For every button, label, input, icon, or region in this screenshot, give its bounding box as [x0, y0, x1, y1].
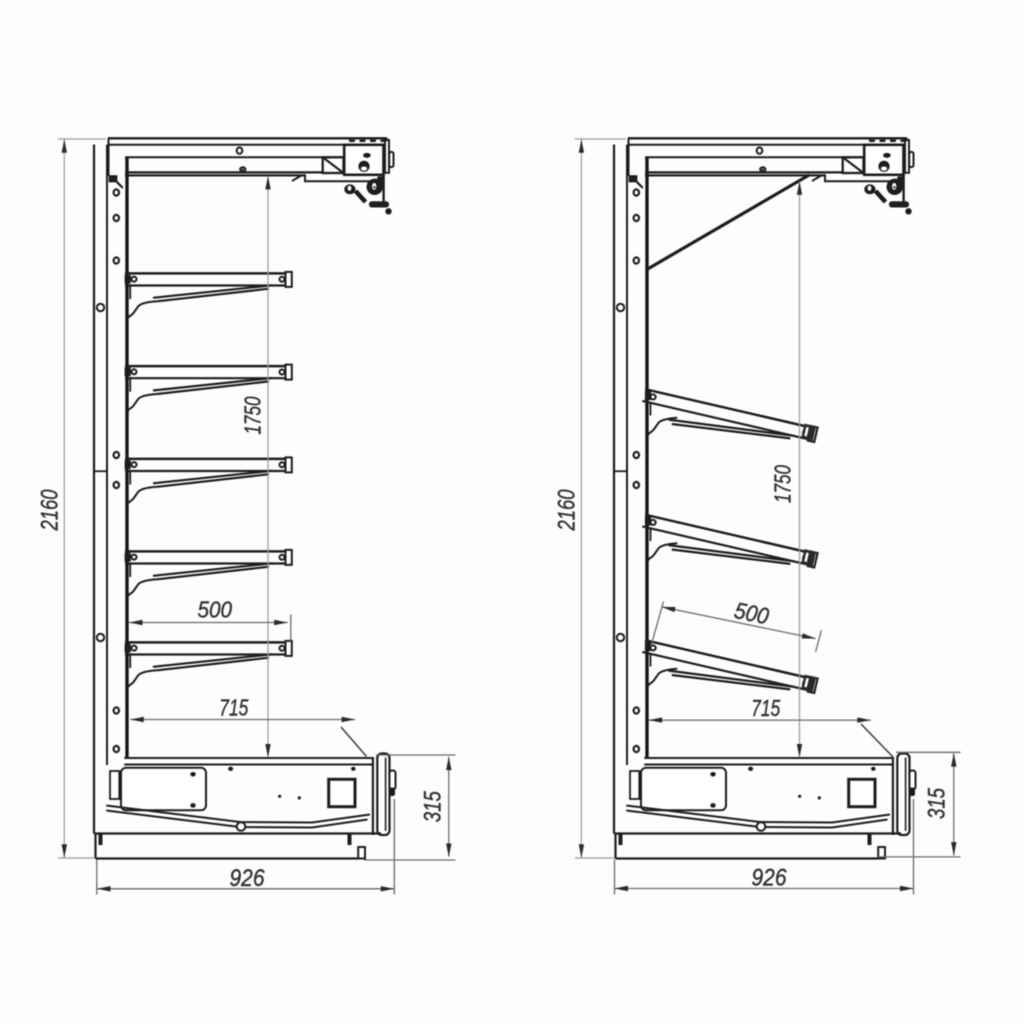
svg-text:715: 715 — [751, 695, 780, 721]
svg-text:1750: 1750 — [769, 465, 795, 503]
svg-text:500: 500 — [197, 597, 232, 623]
svg-text:1750: 1750 — [240, 396, 266, 434]
svg-text:2160: 2160 — [37, 489, 64, 531]
svg-text:926: 926 — [752, 865, 788, 892]
svg-text:926: 926 — [230, 865, 266, 892]
svg-text:715: 715 — [219, 695, 248, 721]
svg-text:315: 315 — [924, 787, 951, 819]
svg-text:2160: 2160 — [554, 489, 581, 531]
svg-text:315: 315 — [420, 791, 447, 823]
